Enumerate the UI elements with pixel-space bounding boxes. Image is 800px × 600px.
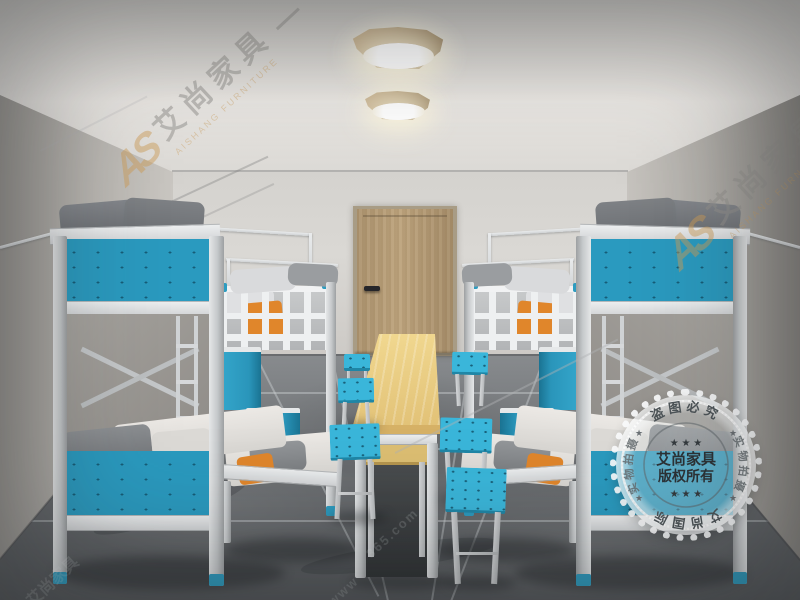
dorm-room-render: AS 艾尚家具 AISHANG FURNITURE — AS 艾尚家具 AISH… [0, 0, 800, 600]
vignette-overlay [0, 0, 800, 600]
